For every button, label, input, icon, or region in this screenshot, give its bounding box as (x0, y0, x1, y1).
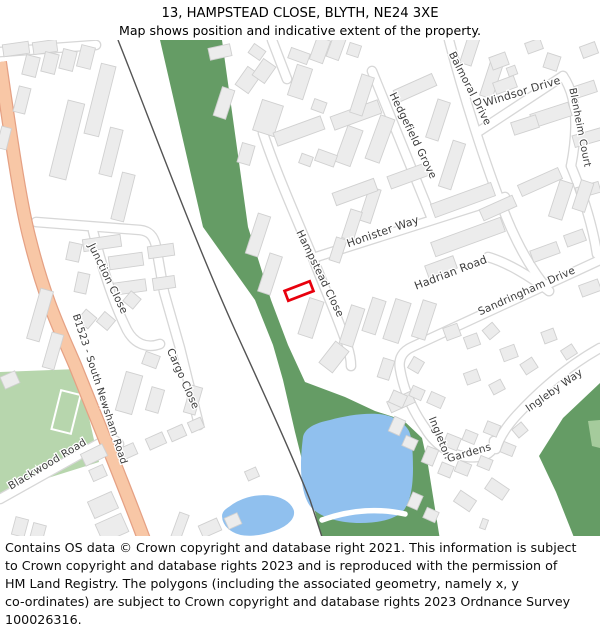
map-container: B1523 - South Newsham Road Junction Clos… (0, 40, 600, 537)
copyright-line: 100026316. (5, 611, 596, 625)
title-block: 13, HAMPSTEAD CLOSE, BLYTH, NE24 3XE Map… (0, 0, 600, 40)
map-image: B1523 - South Newsham Road Junction Clos… (0, 40, 600, 537)
copyright-notice: Contains OS data © Crown copyright and d… (0, 536, 600, 625)
page-title: 13, HAMPSTEAD CLOSE, BLYTH, NE24 3XE (0, 0, 600, 21)
copyright-line: co-ordinates) are subject to Crown copyr… (5, 593, 596, 611)
copyright-line: to Crown copyright and database rights 2… (5, 557, 596, 575)
copyright-line: Contains OS data © Crown copyright and d… (5, 539, 596, 557)
copyright-line: HM Land Registry. The polygons (includin… (5, 575, 596, 593)
building (152, 276, 175, 291)
page-subtitle: Map shows position and indicative extent… (0, 21, 600, 38)
land-registry-map-page: 13, HAMPSTEAD CLOSE, BLYTH, NE24 3XE Map… (0, 0, 600, 625)
